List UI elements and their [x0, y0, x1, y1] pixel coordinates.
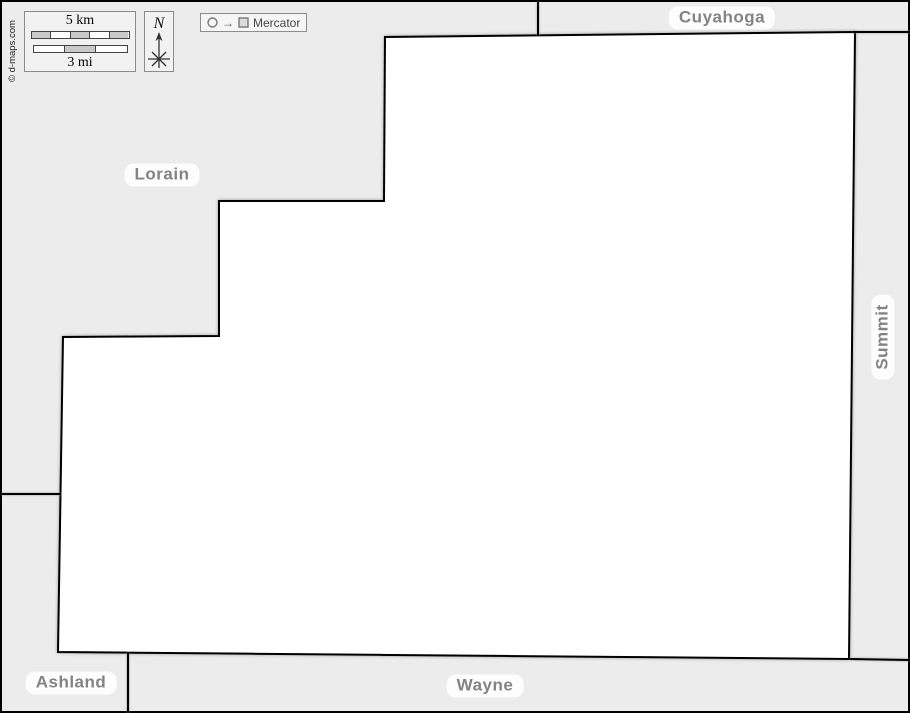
north-label: N	[154, 15, 165, 32]
scale-segment	[32, 32, 51, 38]
scale-segment	[89, 32, 109, 38]
neighbor-label-summit: Summit	[872, 294, 895, 379]
projection-box: → Mercator	[200, 13, 307, 32]
border-summit-wayne	[850, 659, 910, 660]
map-canvas: { "canvas": { "background": "#ececec", "…	[0, 0, 910, 713]
scale-segment	[64, 46, 95, 52]
scale-segment	[50, 32, 70, 38]
county-map	[0, 0, 910, 713]
projected-square-icon	[238, 17, 249, 28]
scale-segment	[95, 46, 126, 52]
scale-mi-label: 3 mi	[67, 56, 92, 70]
neighbor-label-lorain: Lorain	[125, 164, 200, 187]
scale-segment	[70, 32, 90, 38]
globe-circle-icon	[207, 17, 218, 28]
neighbor-label-wayne: Wayne	[447, 675, 524, 698]
county-shape-medina	[58, 32, 855, 659]
compass-box: N	[144, 11, 174, 72]
copyright-notice: © d-maps.com	[7, 20, 18, 82]
scale-bar-mi	[33, 45, 128, 53]
neighbor-label-cuyahoga: Cuyahoga	[669, 7, 775, 30]
neighbor-label-ashland: Ashland	[26, 672, 117, 695]
projection-arrow-icon: →	[222, 17, 234, 29]
projection-name: Mercator	[253, 16, 300, 30]
scale-bar-box: 5 km 3 mi	[24, 11, 136, 72]
scale-bar-km	[31, 31, 130, 39]
scale-km-label: 5 km	[66, 14, 94, 28]
scale-segment	[34, 46, 64, 52]
north-arrow-icon	[146, 32, 172, 70]
scale-segment	[109, 32, 129, 38]
